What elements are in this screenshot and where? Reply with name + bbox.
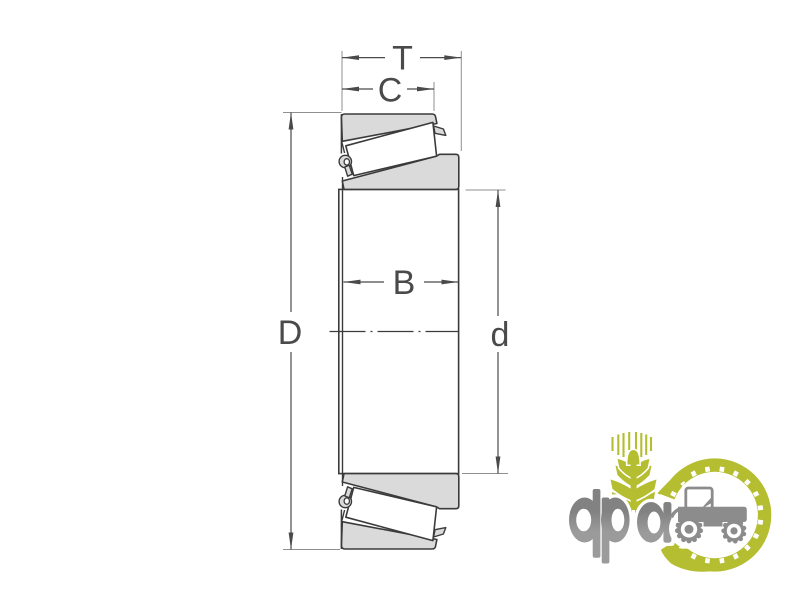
svg-text:d: d (491, 316, 510, 354)
svg-text:C: C (378, 71, 403, 109)
svg-text:D: D (278, 314, 303, 352)
svg-text:B: B (393, 264, 416, 302)
